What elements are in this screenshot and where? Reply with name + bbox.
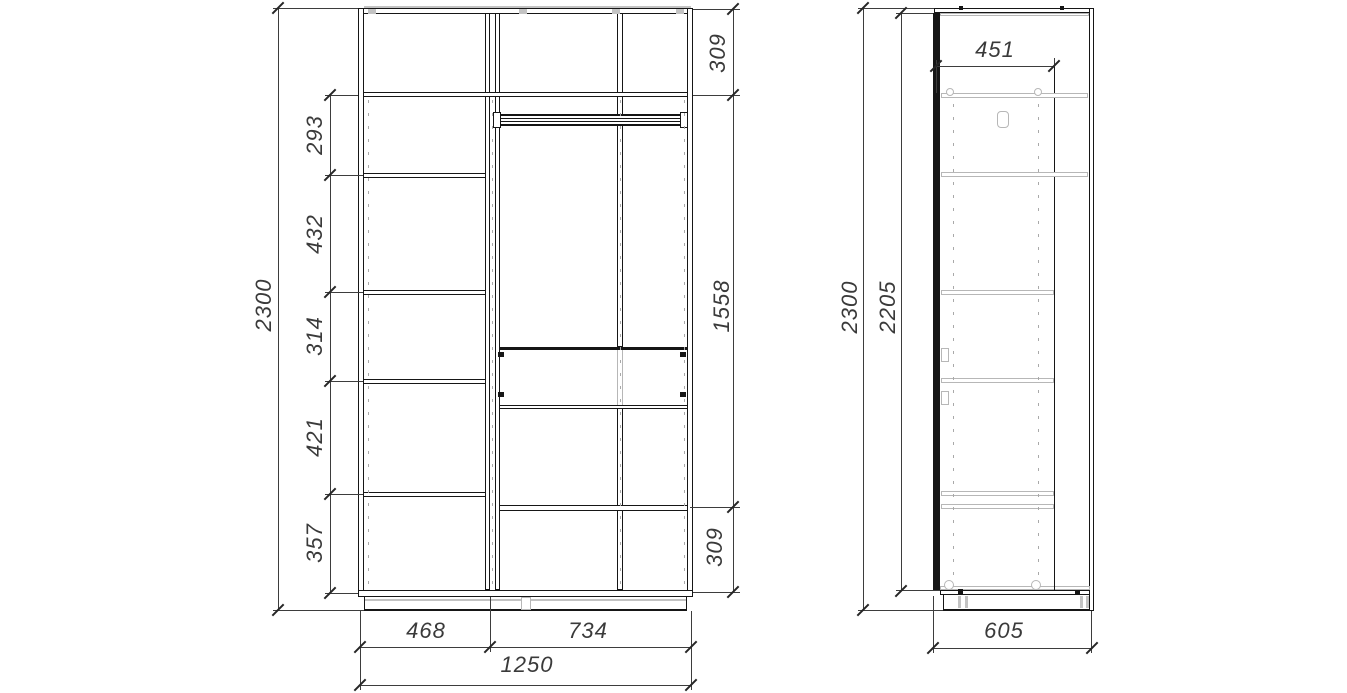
top-bracket-1 — [368, 9, 376, 14]
dim-side-overall-height: 2300 — [838, 257, 862, 357]
dim-line-front-overall-width — [360, 685, 692, 686]
side-bottom-screw-front — [958, 589, 963, 594]
front-left-shelf-2 — [363, 290, 486, 295]
side-top-screw-back — [1060, 6, 1064, 10]
side-foot-front-a — [958, 596, 961, 608]
hole-line-divider-right — [620, 100, 621, 590]
front-divider-left-panel-a — [485, 13, 490, 590]
front-bottom-panel — [358, 590, 693, 597]
dim-shelf-spacing-5: 357 — [303, 493, 327, 593]
dim-line-side-door-height — [901, 13, 902, 591]
front-plinth-right-edge — [686, 597, 687, 611]
dim-right-section-width: 734 — [538, 619, 638, 643]
dim-shelf-spacing-2: 432 — [303, 184, 327, 284]
front-center-foot — [521, 597, 531, 610]
hole-line-right-wall — [684, 100, 685, 590]
dim-side-overall-depth: 605 — [954, 619, 1054, 643]
front-divider-left-panel-b — [495, 13, 500, 590]
side-plinth-bottom — [943, 609, 1090, 611]
front-left-shelf-1 — [363, 173, 486, 178]
hanging-rail-tube-inner — [501, 118, 680, 122]
side-shelf-1 — [941, 93, 1088, 98]
hole-line-left-wall — [368, 100, 369, 590]
ext-side-bottom-2300 — [858, 610, 943, 611]
dim-side-interior-depth: 451 — [945, 38, 1045, 62]
dim-line-front-widths — [360, 647, 692, 648]
side-plinth-front — [943, 595, 944, 610]
ext-front-bottom-left — [273, 610, 364, 611]
dim-shelf-spacing-1: 293 — [303, 85, 327, 185]
shelf-support-right — [1034, 88, 1042, 96]
dim-bottom-section-height: 309 — [703, 497, 727, 597]
drawer-fitting-bottom-right — [680, 392, 686, 397]
side-hole-line-front — [953, 104, 954, 582]
drawer-fitting-top-left — [498, 352, 504, 357]
front-left-shelf-3 — [363, 379, 486, 384]
ext-bottom-right-corner — [691, 611, 692, 690]
front-right-bottom-shelf — [499, 505, 688, 511]
side-foot-front-b — [965, 596, 968, 608]
side-cam-lock-back — [1031, 580, 1041, 590]
dim-front-overall-width: 1250 — [477, 653, 577, 677]
dim-side-door-height: 2205 — [876, 257, 900, 357]
side-foot-back-b — [1086, 596, 1089, 608]
front-drawer-bottom-line — [499, 405, 688, 409]
hole-line-divider-left — [492, 100, 493, 590]
side-hole-line-back — [1038, 104, 1039, 582]
side-bottom-screw-back — [1075, 590, 1080, 595]
front-left-shelf-4 — [363, 492, 486, 497]
side-top-screw-front — [959, 6, 963, 10]
top-bracket-2 — [519, 9, 527, 14]
dim-line-side-interior-depth — [936, 66, 1055, 67]
side-shelf-2 — [941, 172, 1088, 177]
side-foot-back-a — [1080, 596, 1083, 608]
front-drawer-top-line — [499, 347, 688, 350]
side-top-panel-underside — [940, 13, 1089, 16]
dim-line-side-overall-height — [863, 8, 864, 611]
drawer-fitting-bottom-left — [498, 392, 504, 397]
dim-line-front-shelf-chain — [330, 95, 331, 594]
drawer-fitting-top-right — [680, 352, 686, 357]
ext-bottom-left-corner — [360, 611, 361, 690]
side-hinge-upper — [941, 348, 949, 362]
ext-front-top-left — [273, 8, 358, 9]
dim-shelf-spacing-4: 421 — [303, 387, 327, 487]
dim-line-side-overall-depth — [933, 648, 1092, 649]
dim-front-overall-height: 2300 — [252, 255, 276, 355]
side-rail-bracket — [997, 111, 1009, 128]
side-interior-back-edge — [1054, 66, 1055, 590]
front-top-shelf-full-width — [363, 92, 688, 97]
dim-hanging-section-height: 1558 — [710, 256, 734, 356]
ext-side-top-2300 — [858, 8, 934, 9]
front-plinth-left-edge — [364, 597, 365, 611]
shelf-support-left — [946, 88, 954, 96]
rail-end-cap-left — [493, 112, 501, 128]
side-back-wall — [1089, 8, 1094, 611]
side-cam-lock-front — [944, 580, 954, 590]
dim-top-section-height: 309 — [706, 3, 730, 103]
dim-line-front-overall-height — [278, 8, 279, 611]
side-hinge-lower — [941, 391, 949, 405]
top-bracket-4 — [676, 9, 684, 14]
wardrobe-technical-drawing: 2300 293 432 314 421 357 309 1558 309 46… — [0, 0, 1347, 693]
top-bracket-3 — [612, 9, 620, 14]
dim-shelf-spacing-3: 314 — [303, 286, 327, 386]
side-door-panel — [933, 13, 940, 590]
dim-left-column-width: 468 — [376, 619, 476, 643]
